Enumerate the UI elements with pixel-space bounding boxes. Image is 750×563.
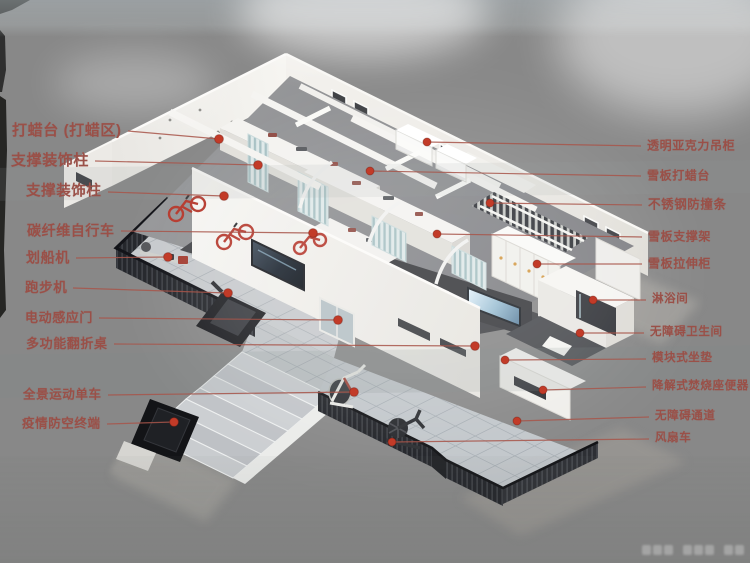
- leader-line: [95, 161, 258, 165]
- callout-dot: [433, 230, 441, 238]
- callout-dot: [350, 388, 359, 397]
- leader-line: [505, 359, 646, 360]
- callout-dot: [471, 342, 480, 351]
- callout-dot: [170, 418, 179, 427]
- callout-dot: [513, 417, 521, 425]
- leader-line: [543, 387, 646, 390]
- leader-line: [99, 318, 338, 320]
- leader-line: [121, 231, 313, 233]
- leader-line: [490, 203, 642, 205]
- leader-line: [73, 288, 228, 293]
- callout-dot: [501, 356, 509, 364]
- callout-dot: [486, 199, 494, 207]
- leader-line: [108, 192, 224, 196]
- leader-line: [107, 422, 174, 424]
- callout-dot: [589, 296, 597, 304]
- leader-line: [517, 417, 649, 421]
- leader-line: [392, 439, 649, 442]
- leader-line: [114, 344, 475, 346]
- callout-dot: [539, 386, 547, 394]
- callout-dot: [423, 138, 431, 146]
- leader-line: [76, 257, 168, 258]
- callout-dot: [215, 135, 224, 144]
- callout-dot: [224, 289, 233, 298]
- callout-dot: [576, 329, 584, 337]
- callout-lines-layer: [0, 0, 750, 563]
- callout-dot: [366, 167, 374, 175]
- callout-dot: [164, 253, 173, 262]
- leader-line: [427, 142, 641, 146]
- poster-photo: 打蜡台 (打蜡区)支撑装饰柱支撑装饰柱碳纤维自行车划船机跑步机电动感应门多功能翻…: [0, 0, 750, 563]
- callout-dot: [533, 260, 541, 268]
- leader-line: [108, 392, 354, 395]
- leader-line: [370, 171, 641, 176]
- callout-dot: [254, 161, 263, 170]
- leader-line: [128, 131, 219, 139]
- callout-dot: [388, 438, 396, 446]
- callout-dot: [309, 229, 318, 238]
- callout-dot: [334, 316, 343, 325]
- leader-line: [437, 234, 642, 237]
- callout-dot: [220, 192, 229, 201]
